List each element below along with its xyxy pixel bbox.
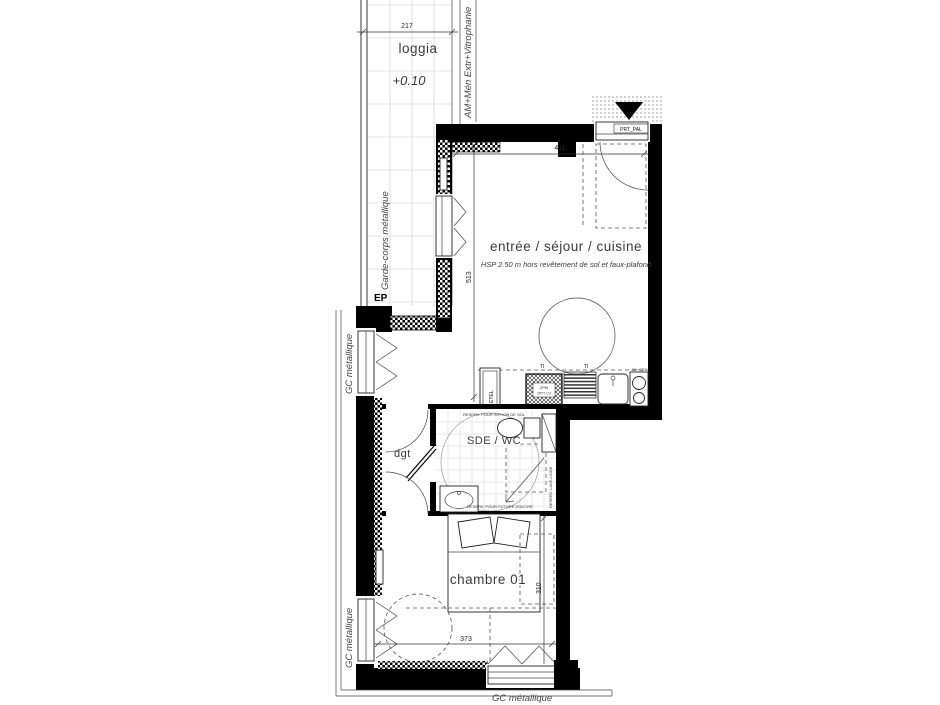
etel-cabinet: ETEL [480,368,500,408]
dimension-loggia-width: 217 [357,23,458,35]
dim-373-label: 373 [460,636,472,643]
room-label-loggia: loggia [398,41,437,56]
window-dgt [354,328,397,396]
window-chambre-west [354,596,397,664]
insulation-strip [390,316,438,330]
dgt-door-arc-top [386,410,428,452]
loggia-level-label: +0.10 [393,73,427,88]
dimension-chambre-width: 373 [374,636,556,647]
sde-wc-room: SDE / WC RESERV. LAVE-LINGE RESERV. POUR… [374,404,558,516]
dim-217-label: 217 [401,23,413,30]
insulation-south [378,661,488,669]
ti-label-1: TI [540,364,544,370]
floor-plan-drawing: 217 loggia +0.10 Garde-corps métallique … [0,0,940,705]
entry-closet-dashed [596,144,646,228]
dim-411-label: 411 [554,145,565,152]
sejour-west-window [434,194,466,258]
west-wall: GC métallique GC métallique [344,306,397,672]
dgt-door-arc-bottom [386,472,428,514]
gc-label-lower: GC métallique [344,608,355,668]
dimension-sejour-height: 513 [466,142,477,402]
loggia-railing [361,0,367,307]
ep-label: EP [374,293,388,304]
floor-plan-canvas: 217 loggia +0.10 Garde-corps métallique … [0,0,940,705]
sde-note-top: RESERV. POUR SIPHON DE SOL [463,412,526,417]
room-label-sejour: entrée / séjour / cuisine [490,239,642,254]
garde-corps-label: Garde-corps métallique [380,191,391,290]
drainer [564,372,596,398]
drain-arrow [506,458,544,502]
cooktop: AB+C23 [630,367,648,406]
turning-radius-chambre [384,594,452,662]
sde-note-ll: RESERV. LAVE-LINGE [548,466,553,508]
gc-label-upper: GC métallique [344,334,355,394]
kitchen-run: ETEL TI TI 2PM OPT LV AB+C23 [478,364,648,408]
insulation-west-lower [438,260,450,318]
door-swing-arc [600,142,648,190]
dgt-corridor: dgt [386,410,428,514]
dim-310-label: 310 [536,582,543,594]
chambre-room: chambre 01 310 373 [374,514,556,672]
radiator-marker-2 [376,550,383,584]
appliance-label-1: 2PM [540,385,548,390]
door-label: PRT_PAL [620,127,642,133]
sejour-hsp-note: HSP 2.50 m hors revêtement de sol et fau… [481,260,652,269]
insulation-top [452,142,500,152]
table-circle [539,298,615,374]
wc-toilet [498,418,541,438]
wall-right [648,124,662,420]
am-men-extr-label: AM+Mén Extr+Vitrophanie [463,7,474,119]
cooktop-label: AB+C23 [631,367,647,372]
shower-reservation-dashed [506,444,546,492]
room-label-dgt: dgt [394,448,411,460]
sde-note-bottom: RESERV. POUR FUTURE DOUCHE [467,504,533,509]
radiator-marker [440,158,447,190]
oven-appliance: 2PM OPT LV [526,374,562,406]
sejour-interior: 411 513 entrée / séjour / cuisine HSP 2.… [452,142,652,402]
loggia-area: 217 loggia +0.10 Garde-corps métallique … [357,0,476,307]
appliance-label-2: OPT LV [537,391,551,396]
corner-block [554,660,578,690]
dim-513-label: 513 [466,271,473,283]
bed [448,514,540,612]
gc-label-bottom: GC métallique [492,693,552,704]
etel-label: ETEL [489,390,495,403]
window-chambre-south [486,646,558,688]
ti-label-2: TI [584,364,588,370]
wall-right-lower [556,404,570,690]
room-label-chambre: chambre 01 [450,572,526,587]
kitchen-sink [598,374,628,404]
